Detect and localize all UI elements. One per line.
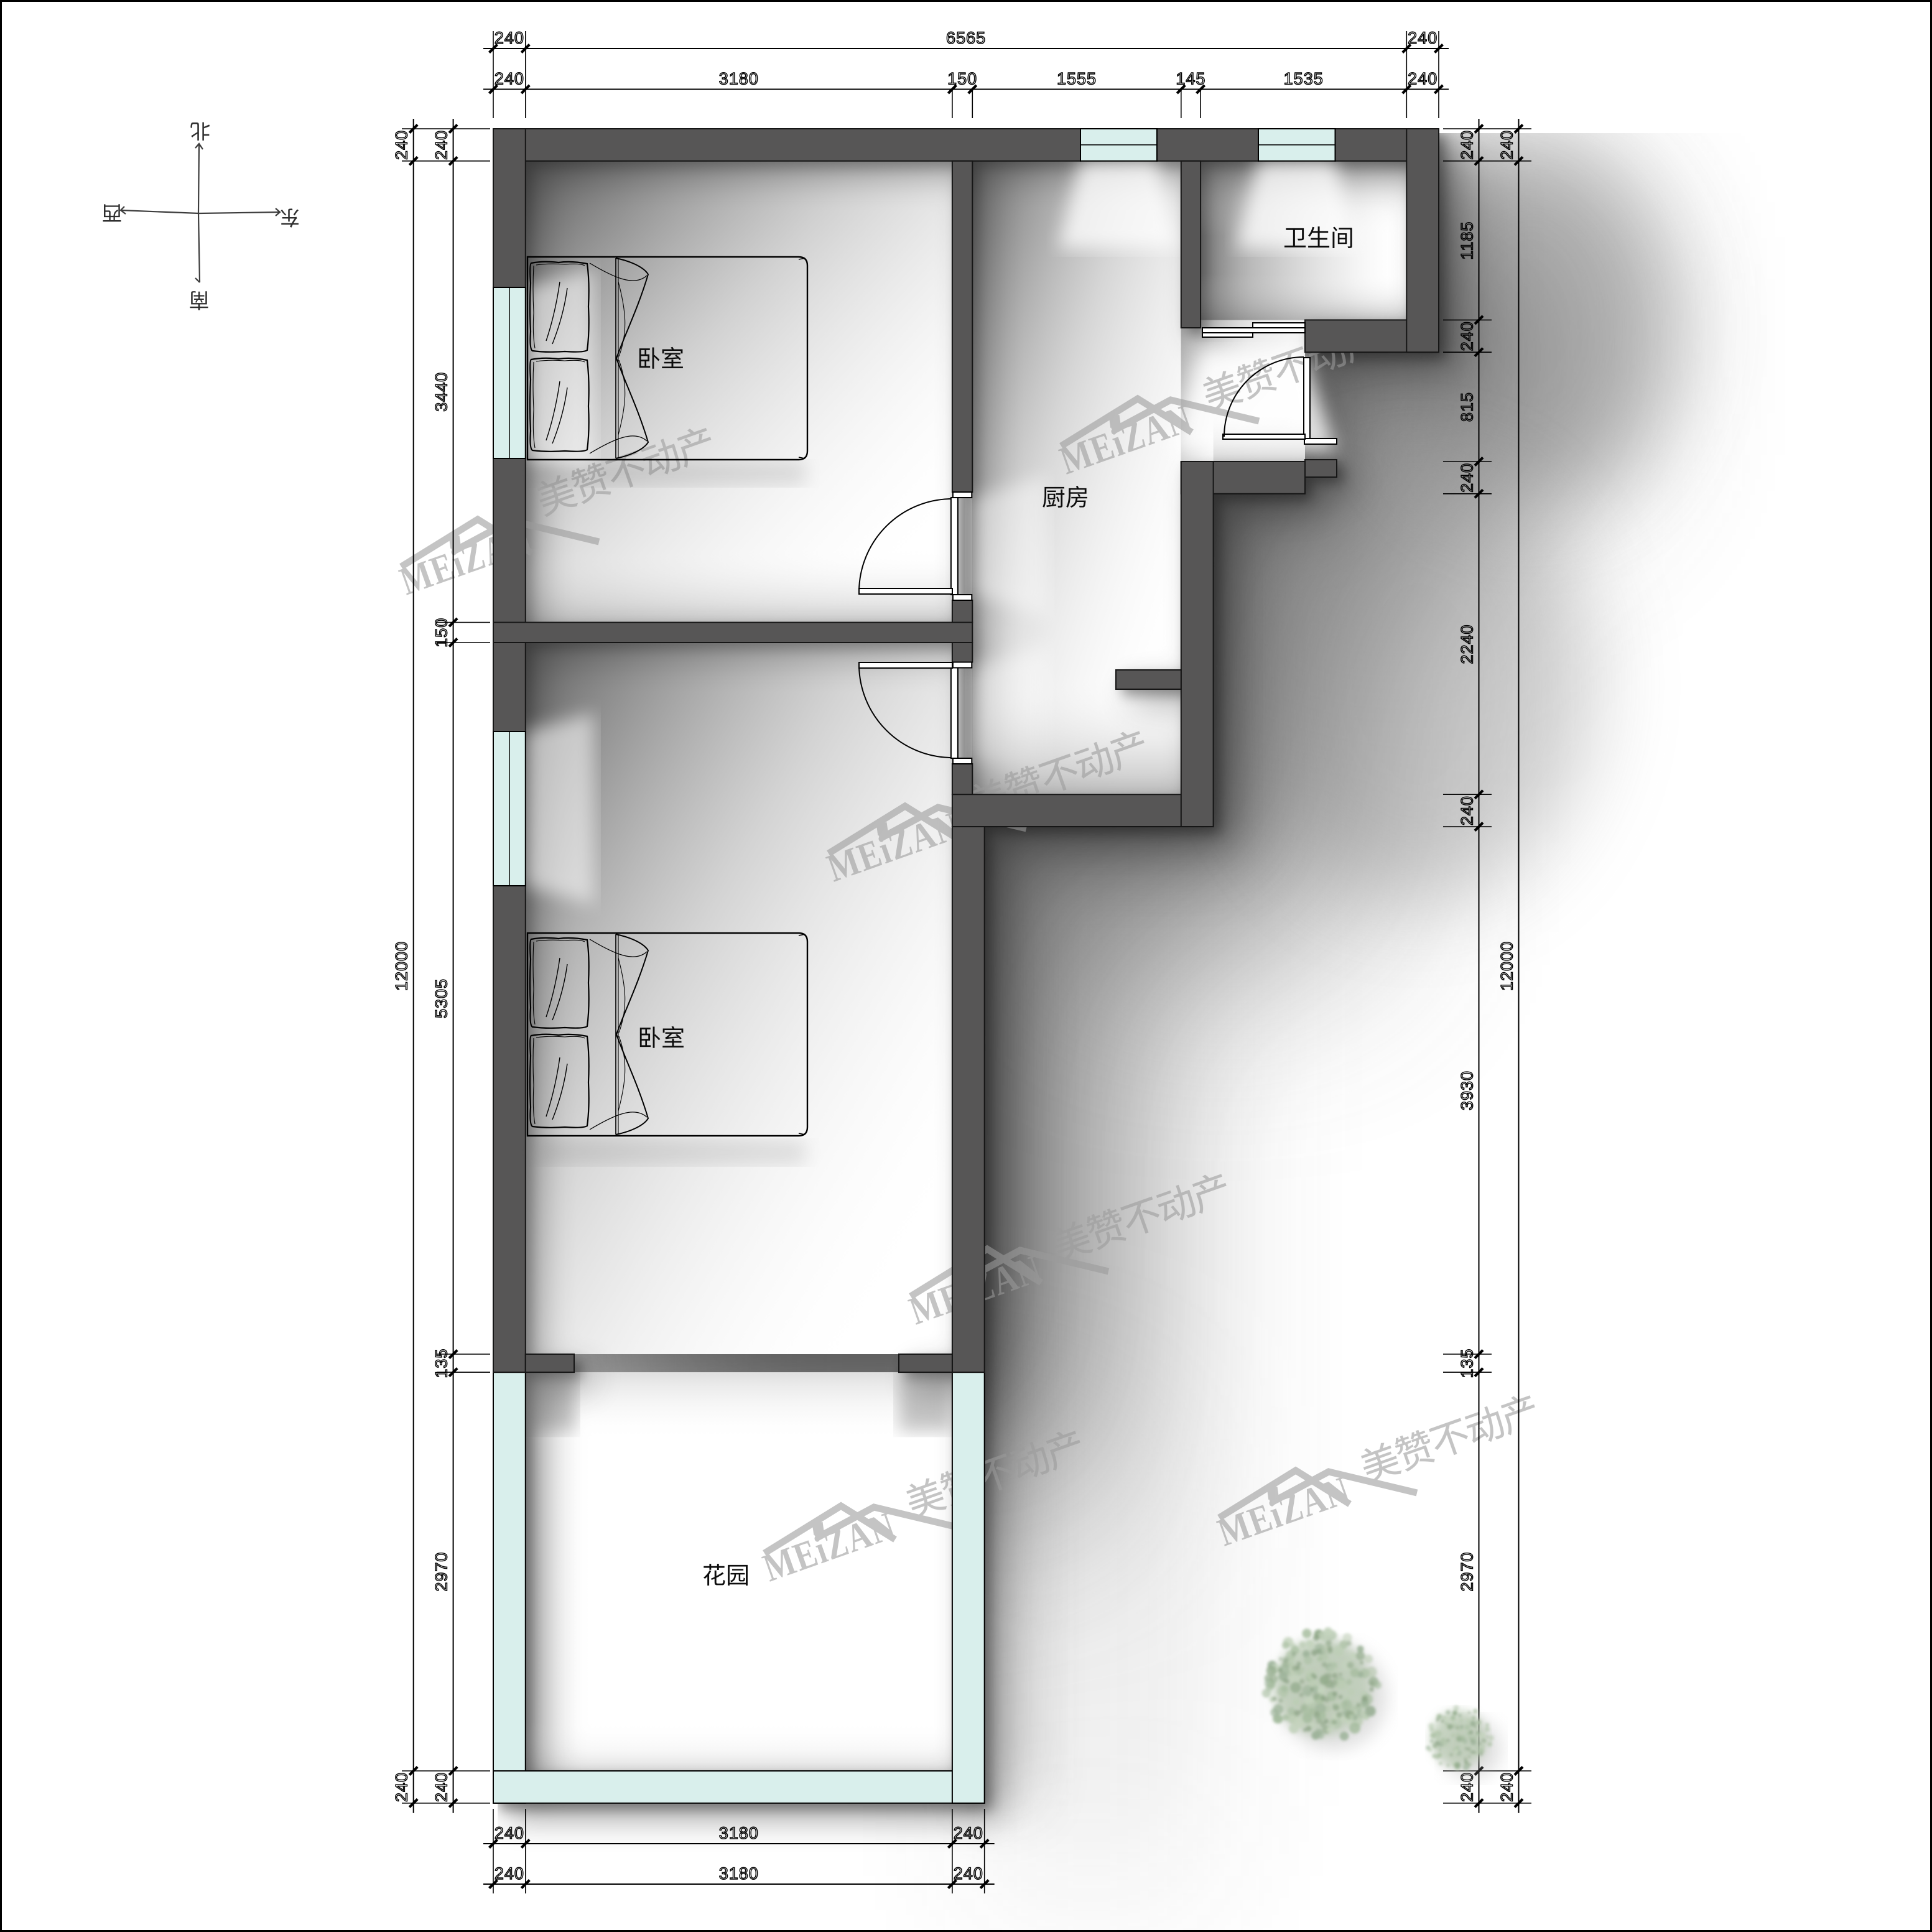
svg-text:5305: 5305 [432,978,451,1018]
svg-text:2970: 2970 [1458,1552,1477,1592]
svg-text:240: 240 [1458,463,1477,493]
svg-text:12000: 12000 [1498,941,1516,991]
svg-text:150: 150 [432,618,451,648]
svg-text:150: 150 [947,70,977,88]
svg-text:145: 145 [1176,70,1205,88]
svg-text:3180: 3180 [719,1824,759,1842]
svg-text:2240: 2240 [1458,624,1477,664]
svg-text:240: 240 [432,130,451,160]
svg-text:240: 240 [1458,796,1477,825]
svg-text:240: 240 [495,70,524,88]
svg-text:240: 240 [954,1864,983,1883]
svg-text:3440: 3440 [432,372,451,412]
svg-text:240: 240 [1498,130,1516,160]
svg-text:1555: 1555 [1057,70,1097,88]
svg-text:240: 240 [1408,29,1437,47]
svg-text:240: 240 [1458,321,1477,351]
svg-text:3180: 3180 [719,70,759,88]
svg-text:1535: 1535 [1284,70,1324,88]
svg-text:3180: 3180 [719,1864,759,1883]
svg-text:240: 240 [495,29,524,47]
svg-text:12000: 12000 [392,941,411,991]
svg-text:240: 240 [1408,70,1437,88]
svg-text:240: 240 [495,1864,524,1883]
svg-text:815: 815 [1458,392,1477,422]
svg-text:240: 240 [392,130,411,160]
svg-text:135: 135 [1458,1349,1477,1378]
svg-text:240: 240 [392,1772,411,1802]
svg-text:1185: 1185 [1458,221,1477,260]
svg-text:135: 135 [432,1349,451,1378]
svg-text:240: 240 [954,1824,983,1842]
svg-text:2970: 2970 [432,1552,451,1592]
svg-text:6565: 6565 [946,29,986,47]
svg-text:240: 240 [432,1772,451,1802]
svg-text:3930: 3930 [1458,1070,1477,1110]
svg-text:240: 240 [1458,130,1477,160]
svg-text:240: 240 [495,1824,524,1842]
svg-text:240: 240 [1498,1772,1516,1802]
